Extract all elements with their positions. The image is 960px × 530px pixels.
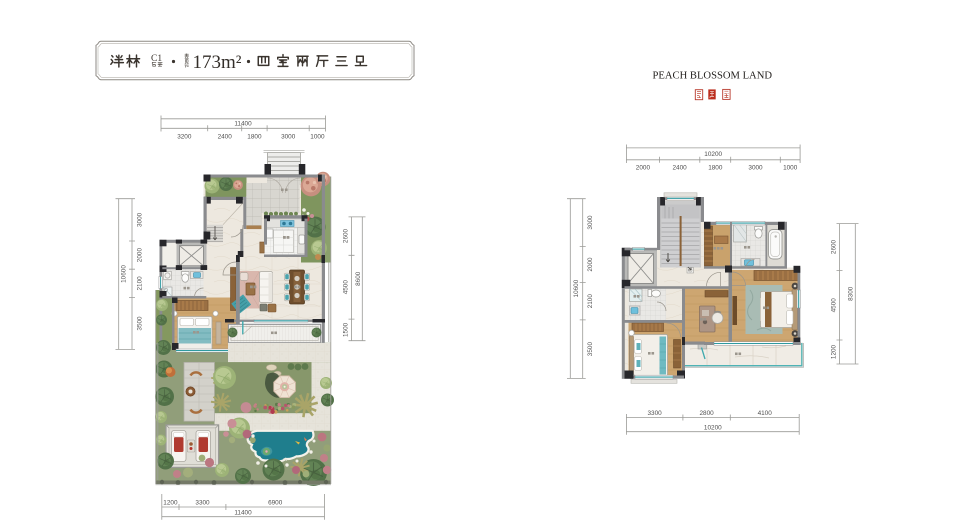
svg-text:2000: 2000 <box>587 257 594 272</box>
svg-text:2000: 2000 <box>137 248 144 263</box>
svg-text:2000: 2000 <box>636 165 651 172</box>
svg-text:1200: 1200 <box>163 499 178 506</box>
svg-text:1000: 1000 <box>783 165 798 172</box>
svg-text:1500: 1500 <box>343 322 350 337</box>
svg-text:3500: 3500 <box>137 316 144 331</box>
svg-text:1200: 1200 <box>831 344 838 359</box>
svg-text:10600: 10600 <box>573 279 580 297</box>
svg-text:2100: 2100 <box>587 294 594 309</box>
svg-text:3000: 3000 <box>281 134 296 141</box>
svg-text:10200: 10200 <box>704 424 722 431</box>
svg-text:2400: 2400 <box>672 165 687 172</box>
svg-text:4100: 4100 <box>758 410 773 417</box>
svg-text:3000: 3000 <box>587 215 594 230</box>
svg-text:2600: 2600 <box>831 239 838 254</box>
svg-text:2100: 2100 <box>137 276 144 291</box>
svg-text:3300: 3300 <box>647 410 662 417</box>
svg-text:3000: 3000 <box>137 212 144 227</box>
svg-text:4500: 4500 <box>343 280 350 295</box>
svg-text:4500: 4500 <box>831 298 838 313</box>
svg-text:2600: 2600 <box>343 228 350 243</box>
svg-text:173m²: 173m² <box>193 52 242 73</box>
svg-text:2400: 2400 <box>218 134 233 141</box>
svg-text:10600: 10600 <box>121 265 128 283</box>
svg-text:3000: 3000 <box>748 165 763 172</box>
svg-text:2800: 2800 <box>699 410 714 417</box>
svg-text:11400: 11400 <box>234 121 252 128</box>
svg-text:11400: 11400 <box>234 510 252 517</box>
svg-text:6900: 6900 <box>268 499 283 506</box>
svg-text:PEACH BLOSSOM LAND: PEACH BLOSSOM LAND <box>653 71 773 82</box>
svg-text:1000: 1000 <box>310 134 325 141</box>
svg-text:3500: 3500 <box>587 342 594 357</box>
svg-text:10200: 10200 <box>704 151 722 158</box>
svg-text:1800: 1800 <box>247 134 262 141</box>
svg-text:8600: 8600 <box>355 271 362 286</box>
svg-text:1800: 1800 <box>708 165 723 172</box>
svg-text:3300: 3300 <box>195 499 210 506</box>
svg-text:8300: 8300 <box>847 286 854 301</box>
svg-text:3200: 3200 <box>177 134 192 141</box>
